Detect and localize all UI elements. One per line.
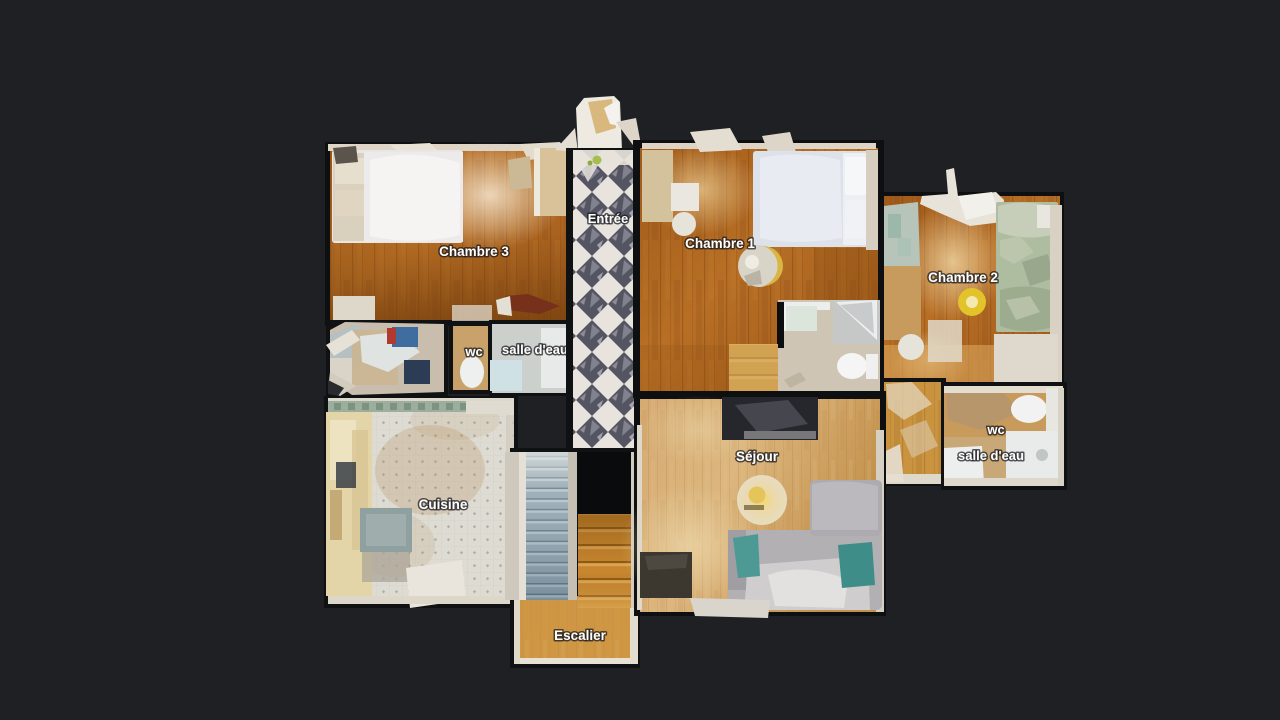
svg-text:wc: wc: [464, 344, 482, 359]
svg-text:Séjour: Séjour: [736, 449, 779, 464]
svg-text:Escalier: Escalier: [554, 628, 607, 643]
svg-text:Chambre 1: Chambre 1: [685, 236, 755, 251]
svg-text:wc: wc: [986, 422, 1004, 437]
svg-text:Cuisine: Cuisine: [419, 497, 468, 512]
svg-text:Chambre 3: Chambre 3: [439, 244, 509, 259]
svg-text:salle d'eau: salle d'eau: [502, 342, 568, 357]
svg-text:Entrée: Entrée: [588, 211, 628, 226]
svg-text:salle d'eau: salle d'eau: [958, 448, 1024, 463]
svg-text:Chambre 2: Chambre 2: [928, 270, 998, 285]
